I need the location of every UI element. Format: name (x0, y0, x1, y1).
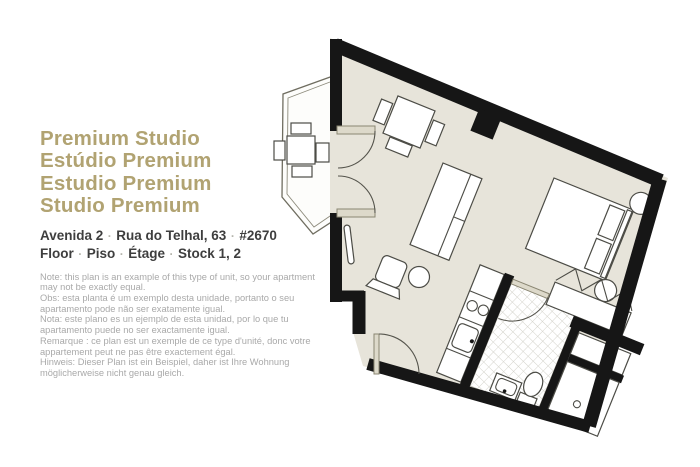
french-door-leaf (337, 126, 375, 134)
balcony (274, 76, 336, 234)
french-door-leaf (337, 209, 375, 217)
side-table-icon (409, 267, 430, 288)
entry-door-leaf (374, 334, 379, 374)
floor-plan (0, 0, 700, 467)
